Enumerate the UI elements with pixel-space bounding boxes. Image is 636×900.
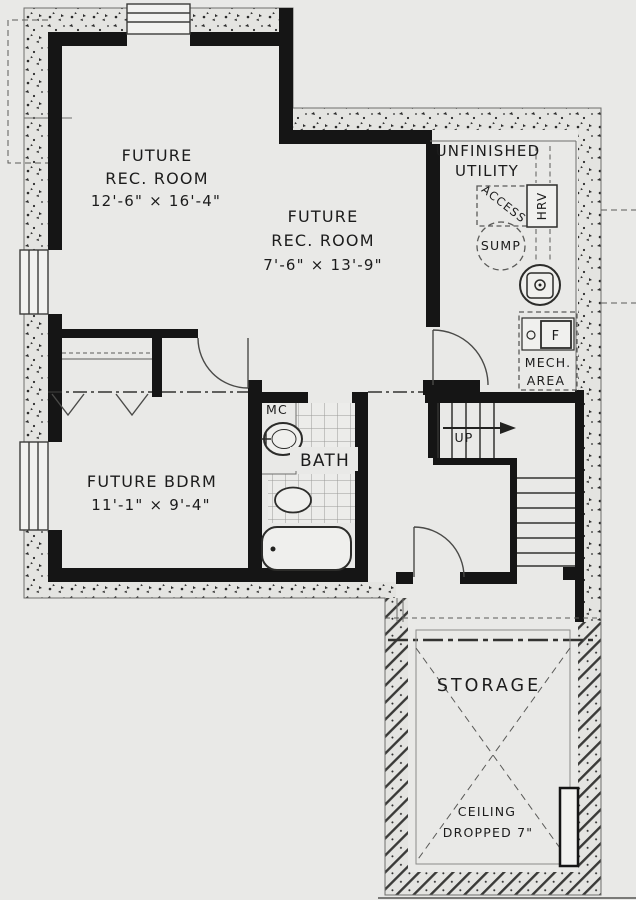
ceiling-note-line2: DROPPED 7" [443, 825, 533, 840]
bath-label: BATH [300, 451, 350, 471]
storage-right-wall-hatched [578, 622, 601, 895]
rec2-label-line1: FUTURE [288, 207, 359, 226]
mech-label-line1: MECH. [525, 355, 572, 370]
wall-stair-top [425, 392, 584, 403]
storage-beam [560, 788, 578, 866]
furnace-outline [522, 318, 574, 350]
toilet [275, 488, 311, 513]
stairs-up-label: UP [454, 430, 473, 445]
wall-segment [190, 32, 281, 46]
water-heater-center [539, 284, 542, 287]
wall-left-mid [48, 314, 62, 329]
wall-step [279, 8, 293, 144]
foundation-bottom-band [24, 582, 396, 598]
wall-bedroom-top [162, 329, 198, 338]
wall-closet-divider [152, 329, 162, 397]
access-label: ACCESS [479, 182, 529, 226]
wall-rec2-top [281, 130, 432, 144]
stair-direction-arrow-head [500, 422, 516, 434]
tub-drain [271, 547, 276, 552]
rec2-label-line2: REC. ROOM [271, 231, 374, 250]
stairs [438, 403, 575, 566]
hrv-label: HRV [535, 192, 549, 221]
wall-left-bedroom [48, 338, 62, 442]
window-left-bedroom [20, 442, 48, 530]
bedroom-label: FUTURE BDRM [87, 472, 217, 491]
mech-label-line2: AREA [527, 373, 566, 388]
storage-door-swing [414, 527, 464, 577]
utility-label-line1: UNFINISHED [436, 142, 541, 160]
foundation-topright-band [293, 108, 601, 130]
bedroom-dims: 11'-1" × 9'-4" [91, 496, 211, 514]
storage-label: STORAGE [437, 676, 541, 696]
rec1-label-line1: FUTURE [122, 146, 193, 165]
wall-left-lower [48, 530, 62, 568]
rec1-dims: 12'-6" × 16'-4" [91, 192, 221, 210]
storage-bottom-wall-hatched [385, 872, 601, 895]
rec2-dims: 7'-6" × 13'-9" [263, 256, 383, 274]
rec1-label-line2: REC. ROOM [105, 169, 208, 188]
sump-label: SUMP [481, 238, 521, 253]
wall-stair-enclosure [510, 458, 517, 575]
wall-utility-west [426, 144, 440, 327]
wall-closet-top [48, 329, 152, 338]
utility-door-swing [433, 330, 488, 385]
window-left-recroom [20, 250, 48, 314]
bedroom-door-swing [198, 338, 248, 388]
floor-plan-page: FUTURE REC. ROOM 12'-6" × 16'-4" FUTURE … [0, 0, 636, 900]
furnace-label: F [552, 329, 561, 344]
wall-stair-inner [433, 458, 510, 465]
wall-hall-bottom [460, 572, 517, 584]
wall-stair-east [575, 390, 584, 622]
floor-plan-drawing: FUTURE REC. ROOM 12'-6" × 16'-4" FUTURE … [0, 0, 636, 900]
storage-left-wall-hatched [385, 598, 408, 895]
utility-label-line2: UTILITY [455, 162, 519, 180]
window-top [127, 4, 190, 34]
wall-bedroom-bath [248, 380, 262, 582]
ceiling-note-line1: CEILING [458, 804, 516, 819]
bathroom [261, 403, 358, 570]
wall-left-upper [48, 46, 62, 250]
closet-shelf [62, 353, 152, 359]
wall-stair-bottom-stub [563, 567, 575, 580]
bath-tile-floor-upper [296, 403, 355, 447]
wall-hall-bottom-stub [396, 572, 413, 584]
wall-segment [48, 32, 127, 46]
wall-bath-east [355, 392, 368, 582]
bifold-door-right [116, 394, 148, 415]
mc-label: MC [266, 402, 288, 417]
